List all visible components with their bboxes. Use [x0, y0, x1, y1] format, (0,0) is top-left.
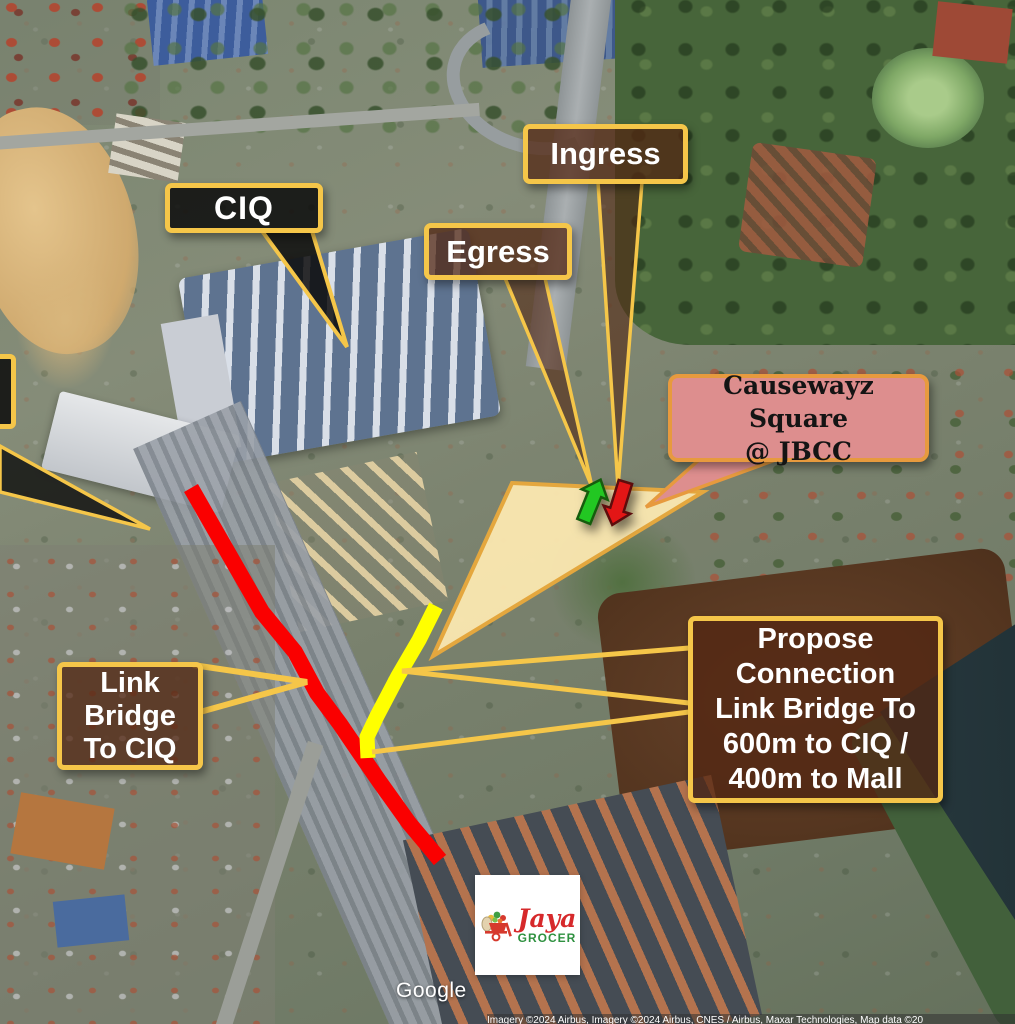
grocery-cart-icon: [479, 908, 515, 942]
satellite-map[interactable]: CIQ Ingress Egress Causewayz Square @ JB…: [0, 0, 1015, 1024]
callout-causewayz-square: Causewayz Square @ JBCC: [668, 374, 929, 462]
callout-partial-left-edge: [0, 354, 16, 429]
propose-callout-pointer-lower: [372, 712, 689, 752]
jaya-grocer-wordmark: Jaya GROCER: [518, 906, 577, 944]
callout-egress: Egress: [424, 223, 572, 280]
map-annotations: [0, 0, 1015, 1024]
ciq-callout-tail: [262, 231, 347, 347]
callout-egress-label: Egress: [446, 234, 549, 270]
jaya-grocer-logo: Jaya GROCER: [475, 875, 580, 975]
jaya-grocer-logo-inner: Jaya GROCER: [479, 906, 577, 944]
callout-ciq-label: CIQ: [214, 190, 274, 227]
ingress-callout-tail: [598, 182, 642, 487]
callout-link-bridge-line: To CIQ: [84, 733, 177, 766]
google-watermark[interactable]: Google: [396, 979, 467, 1003]
link-bridge-callout-pointer: [193, 665, 307, 712]
callout-link-bridge: Link Bridge To CIQ: [57, 662, 203, 770]
callout-ingress: Ingress: [523, 124, 688, 184]
callout-propose-line: Propose: [757, 622, 873, 657]
callout-propose-line: 600m to CIQ /: [723, 727, 908, 762]
callout-causewayz-line: Causewayz Square: [672, 369, 925, 435]
callout-propose-line: Connection: [736, 657, 896, 692]
egress-callout-tail: [505, 278, 592, 487]
callout-causewayz-line: @ JBCC: [745, 435, 852, 468]
callout-link-bridge-line: Bridge: [84, 700, 176, 733]
callout-ingress-label: Ingress: [550, 136, 660, 172]
site-area-polygon: [433, 483, 703, 656]
callout-ciq: CIQ: [165, 183, 323, 233]
map-attribution-text: Imagery ©2024 Airbus, Imagery ©2024 Airb…: [487, 1015, 1015, 1024]
jaya-logo-title: Jaya: [518, 906, 577, 931]
callout-propose-line: 400m to Mall: [728, 762, 902, 797]
edge-callout-tail: [0, 446, 150, 529]
callout-link-bridge-line: Link: [100, 667, 160, 700]
route-yellow-proposed-connection: [367, 606, 436, 758]
propose-callout-pointer-upper: [402, 648, 689, 703]
callout-propose-line: Link Bridge To: [715, 692, 916, 727]
jaya-logo-subtitle: GROCER: [518, 932, 577, 944]
callout-propose-connection: Propose Connection Link Bridge To 600m t…: [688, 616, 943, 803]
map-attribution: Imagery ©2024 Airbus, Imagery ©2024 Airb…: [487, 1014, 1015, 1024]
